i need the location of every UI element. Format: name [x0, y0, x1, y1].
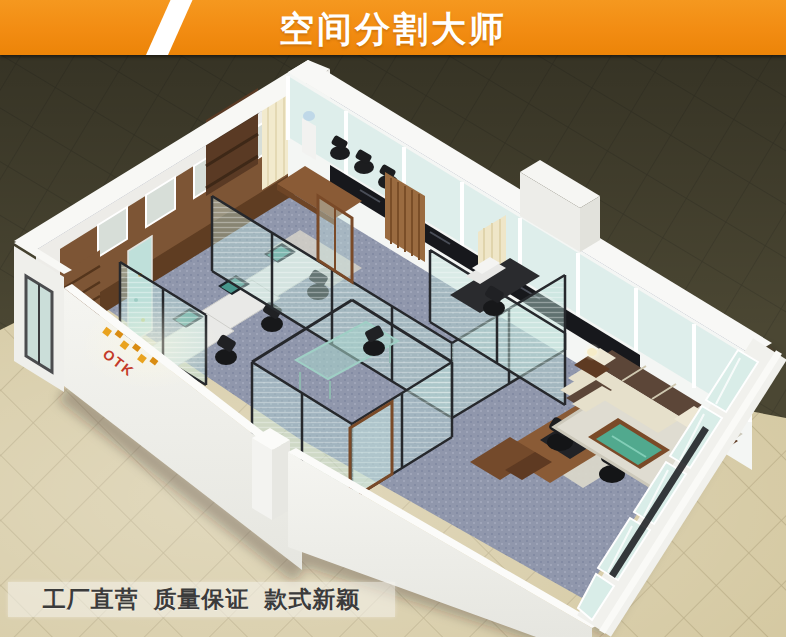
banner-title: 空间分割大师 — [0, 6, 786, 53]
slogan-box: 工厂直营 质量保证 款式新颖 — [8, 582, 395, 617]
office-chair — [261, 316, 283, 332]
slogan-text: 工厂直营 质量保证 款式新颖 — [43, 584, 361, 615]
office-chair — [483, 300, 505, 316]
ad-image: OTK 空 — [0, 0, 786, 637]
office-chair — [363, 340, 385, 356]
office-render: OTK — [0, 0, 786, 637]
corner-column — [252, 428, 290, 520]
top-banner: 空间分割大师 — [0, 0, 786, 55]
